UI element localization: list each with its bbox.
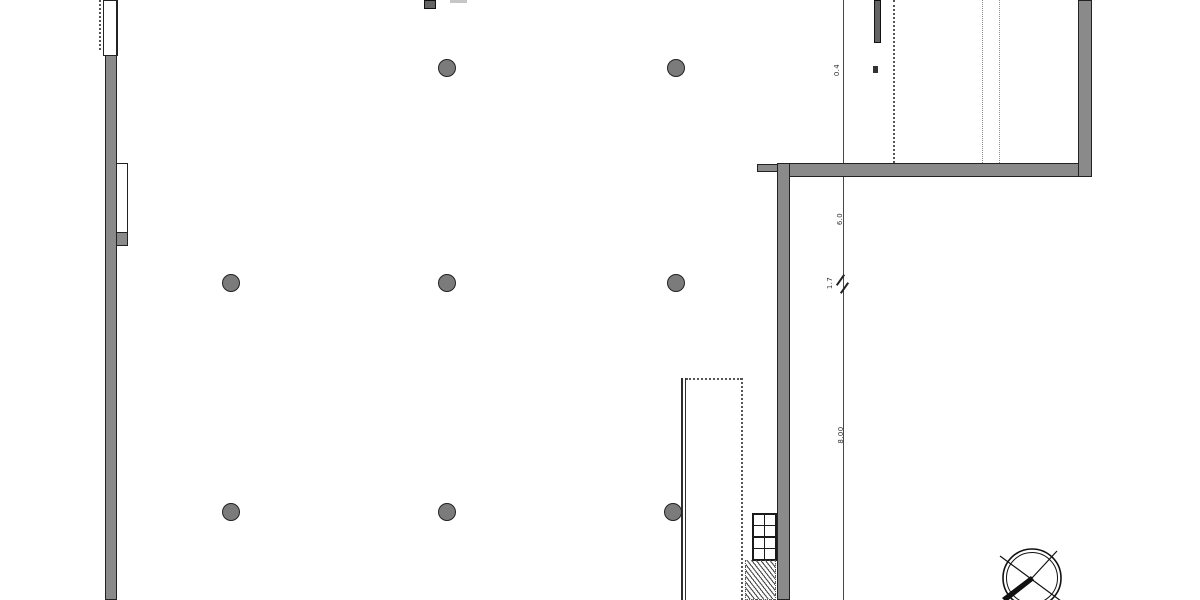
dim-label-top: 0.4 xyxy=(833,57,841,83)
structural-column xyxy=(438,503,456,521)
structural-column xyxy=(667,274,685,292)
upper-right-wall-stub xyxy=(757,164,778,172)
guide-dotted-line-2 xyxy=(982,0,983,163)
top-light-segment xyxy=(450,0,467,3)
dimension-tick-2 xyxy=(840,282,849,294)
stair-run xyxy=(752,513,777,561)
mid-right-wall-vertical xyxy=(777,163,790,600)
structural-column xyxy=(438,274,456,292)
left-wall xyxy=(105,52,117,600)
structural-grid-line xyxy=(843,0,844,600)
top-wall-pier xyxy=(424,0,436,9)
shaft-right-dotted-line xyxy=(741,378,743,600)
structural-column xyxy=(438,59,456,77)
dim-label-tick: 1.7 xyxy=(826,270,834,296)
guide-dotted-line-3 xyxy=(999,0,1000,163)
floor-plan-canvas: 0.46.01.78.00 xyxy=(0,0,1200,600)
structural-column xyxy=(222,274,240,292)
stair-tread xyxy=(754,538,764,548)
stair-tread xyxy=(765,538,775,548)
structural-column xyxy=(664,503,682,521)
stair-tread xyxy=(754,526,764,536)
dim-label-mid: 6.0 xyxy=(836,206,844,232)
small-marker xyxy=(873,66,878,73)
left-wall-niche xyxy=(116,163,128,233)
stair-break-hatch xyxy=(745,560,776,600)
north-arrow-icon xyxy=(987,545,1077,600)
stair-tread xyxy=(754,515,764,525)
shaft-top-dotted-line xyxy=(686,378,742,380)
stair-tread xyxy=(765,526,775,536)
structural-column xyxy=(222,503,240,521)
upper-right-wall-horizontal xyxy=(777,163,1092,177)
structural-column xyxy=(667,59,685,77)
dim-label-low: 8.00 xyxy=(837,422,845,448)
left-wall-top-opening xyxy=(103,0,118,56)
guide-dotted-line-1 xyxy=(893,0,895,163)
left-guide-dashed-line xyxy=(99,0,101,50)
shaft-left-double-line xyxy=(681,378,686,600)
upper-wall-pier xyxy=(874,0,881,43)
stair-treads xyxy=(754,515,775,559)
stair-tread xyxy=(765,549,775,559)
stair-tread xyxy=(754,549,764,559)
stair-tread xyxy=(765,515,775,525)
left-wall-niche-sill xyxy=(116,232,128,246)
far-right-wall-vertical xyxy=(1078,0,1092,177)
